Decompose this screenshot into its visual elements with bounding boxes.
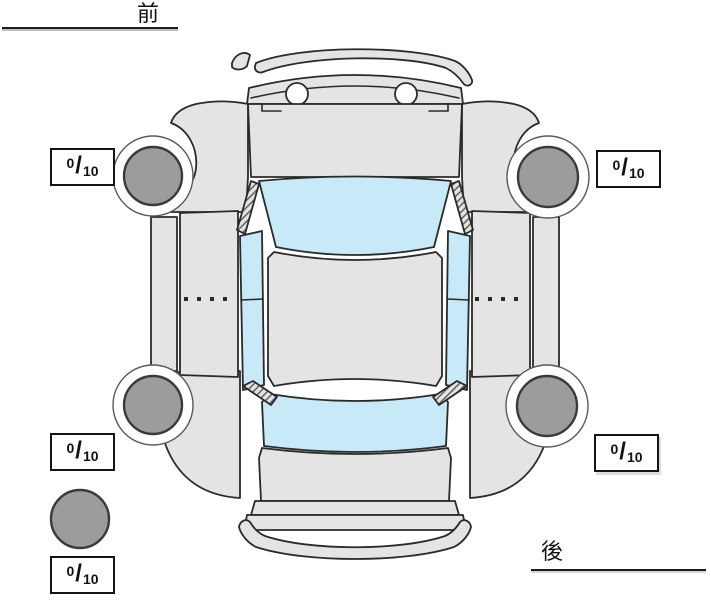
score-value: 0 (66, 563, 74, 579)
rear-window (262, 394, 448, 452)
tire-condition-diagram: 前 後 0 / 10 0 / 10 0 / 10 0 10 / 10 0 / 1… (0, 0, 711, 600)
door-right (472, 211, 530, 377)
c-pillar-left (243, 381, 277, 405)
rear-underline (531, 569, 706, 571)
tire-front-left (124, 147, 182, 205)
front-label: 前 (137, 3, 160, 25)
score-max: 10 (627, 449, 643, 465)
tire-front-right (518, 147, 578, 207)
windshield (259, 177, 451, 256)
tire-score-rear-right: 0 10 / 10 (594, 434, 659, 472)
sill-left (151, 217, 177, 371)
tire-score-front-right: 0 / 10 (596, 150, 661, 188)
score-separator: / (621, 154, 628, 182)
tire-rear-right (517, 376, 577, 436)
tire-spare (51, 490, 109, 548)
score-separator: / (75, 560, 82, 588)
score-max: 10 (83, 163, 99, 179)
headlight-right (395, 83, 417, 105)
score-value: 0 (66, 440, 74, 456)
score-max: 10 (629, 165, 645, 181)
score-max: 10 (83, 571, 99, 587)
roof (268, 252, 442, 386)
hood (248, 104, 462, 177)
score-value: 0 (612, 157, 620, 173)
rear-section (239, 448, 471, 559)
score-value: 0 (66, 155, 74, 171)
tire-score-spare: 0 / 10 (50, 556, 115, 594)
tire-score-rear-left: 0 / 10 (50, 433, 115, 471)
headlight-left (286, 83, 308, 105)
car-top-view (0, 0, 711, 600)
tire-rear-left (124, 376, 182, 434)
c-pillar-right (433, 381, 467, 405)
tire-score-front-left: 0 / 10 (50, 148, 115, 186)
score-separator: / (75, 152, 82, 180)
rear-label: 後 (541, 541, 564, 563)
score-separator: / (619, 438, 626, 466)
side-window-left (240, 231, 264, 390)
sill-right (533, 217, 559, 371)
score-max: 10 (83, 448, 99, 464)
front-bumper (232, 49, 472, 105)
front-underline (2, 27, 178, 29)
score-value: 0 (610, 441, 618, 457)
trunk-lid (259, 448, 451, 501)
side-window-right (446, 231, 470, 390)
score-separator: / (75, 437, 82, 465)
door-left (180, 211, 238, 377)
